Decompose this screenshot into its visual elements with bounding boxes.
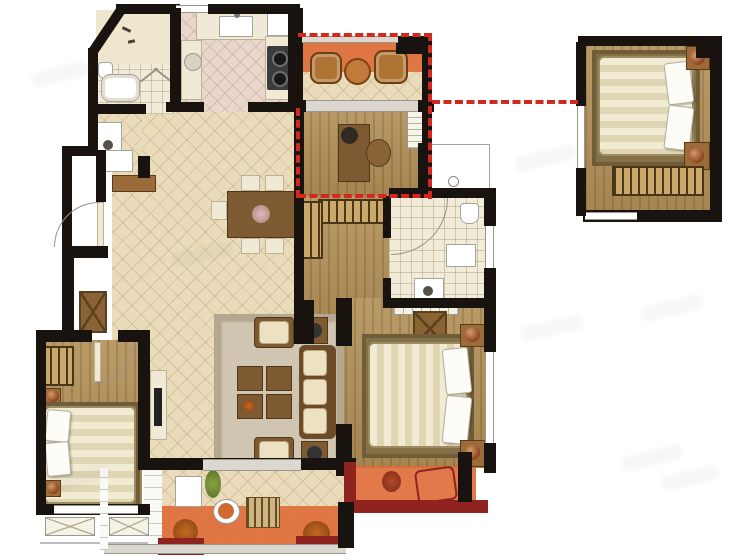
wardrobe-hanging xyxy=(318,199,388,224)
pillow xyxy=(45,409,72,443)
toilet-icon xyxy=(460,203,479,224)
window xyxy=(585,212,637,220)
burner-icon xyxy=(272,51,288,67)
wall xyxy=(138,156,150,178)
equipment-platform-icon xyxy=(448,176,459,187)
wall xyxy=(138,330,150,470)
wall xyxy=(458,452,472,502)
shoe-cabinet xyxy=(103,150,133,172)
balcony-railing xyxy=(302,36,398,43)
dining-chair xyxy=(211,201,227,220)
wall xyxy=(294,196,304,302)
dining-chair xyxy=(241,238,260,254)
wall xyxy=(88,48,98,154)
wall xyxy=(418,143,427,196)
wall xyxy=(92,104,146,114)
wall xyxy=(336,298,352,346)
wall xyxy=(36,330,46,514)
pillow xyxy=(45,441,72,477)
window xyxy=(485,226,494,268)
balcony-railing xyxy=(104,544,346,554)
lamp-icon xyxy=(465,327,480,342)
sink-basin-icon xyxy=(103,140,113,150)
dining-chair xyxy=(265,238,284,254)
wall xyxy=(576,168,586,216)
sliding-window xyxy=(302,100,422,112)
dashed-outline-bottom xyxy=(298,194,432,198)
wicker-chair xyxy=(310,52,342,84)
wall xyxy=(484,443,496,473)
watermark-smudge xyxy=(619,442,685,473)
lamp-icon xyxy=(47,390,59,402)
wall xyxy=(383,196,391,238)
dashed-outline-left xyxy=(296,108,300,198)
wall xyxy=(484,188,496,226)
wall xyxy=(62,250,74,340)
watermark-smudge xyxy=(29,59,91,89)
balcony-round-table xyxy=(344,58,371,85)
bath-mat xyxy=(446,244,476,267)
watermark-smudge xyxy=(659,463,721,493)
wall xyxy=(710,36,722,220)
window xyxy=(577,106,585,168)
entry-door-swing-arc xyxy=(54,202,99,247)
coffee-table-segment xyxy=(266,366,292,391)
sofa-cushion xyxy=(303,408,327,434)
watermark-smudge xyxy=(639,292,705,323)
window xyxy=(176,5,212,13)
dashed-outline-right xyxy=(428,33,432,199)
dining-chair xyxy=(241,175,260,191)
kitchen-sink xyxy=(219,16,253,37)
lamp-icon xyxy=(689,148,704,163)
wall xyxy=(576,42,586,106)
desk-lamp-icon xyxy=(341,127,358,144)
window xyxy=(485,352,494,443)
coffee-table-segment xyxy=(266,394,292,419)
wall xyxy=(288,8,303,110)
watermark-smudge xyxy=(519,312,585,343)
burner-icon xyxy=(272,71,288,87)
sink-basin-icon xyxy=(423,286,433,296)
sofa-cushion xyxy=(303,379,327,405)
prep-basin-icon xyxy=(184,53,202,71)
pillow xyxy=(442,347,473,395)
sliding-door xyxy=(203,459,301,471)
laundry-cabinet xyxy=(175,476,202,507)
coffee-table-segment xyxy=(237,366,263,391)
sofa-cushion xyxy=(303,350,327,376)
wall xyxy=(338,502,354,548)
storage-cabinet xyxy=(79,291,107,333)
coffee-table-flower-icon xyxy=(243,400,255,412)
wall xyxy=(170,8,181,106)
dashed-connector xyxy=(432,100,578,104)
plant-icon xyxy=(382,471,401,492)
desk-chair xyxy=(366,139,391,167)
dashed-outline-top xyxy=(298,33,432,37)
window xyxy=(54,505,138,514)
wall xyxy=(389,298,490,308)
wall xyxy=(96,150,106,202)
watermark-smudge xyxy=(513,142,579,173)
tv-icon xyxy=(154,388,162,426)
wall xyxy=(208,4,300,14)
flower-box xyxy=(45,517,95,536)
wardrobe-hanging xyxy=(612,166,704,196)
wall xyxy=(484,308,496,352)
armchair-cushion xyxy=(259,321,289,344)
plant-icon xyxy=(205,470,221,498)
slatted-bench xyxy=(246,497,280,528)
lounge-chair xyxy=(414,465,458,504)
bathtub xyxy=(101,74,140,102)
wall xyxy=(294,300,314,344)
floor-plan-image xyxy=(0,0,750,560)
wicker-chair xyxy=(374,50,408,84)
flower-centerpiece-icon xyxy=(252,205,270,223)
flower-box xyxy=(109,517,149,536)
equipment-platform xyxy=(424,144,490,194)
dining-chair xyxy=(265,175,284,191)
balcony-table-top xyxy=(218,503,234,519)
pillow xyxy=(442,395,473,445)
wall xyxy=(696,36,722,58)
